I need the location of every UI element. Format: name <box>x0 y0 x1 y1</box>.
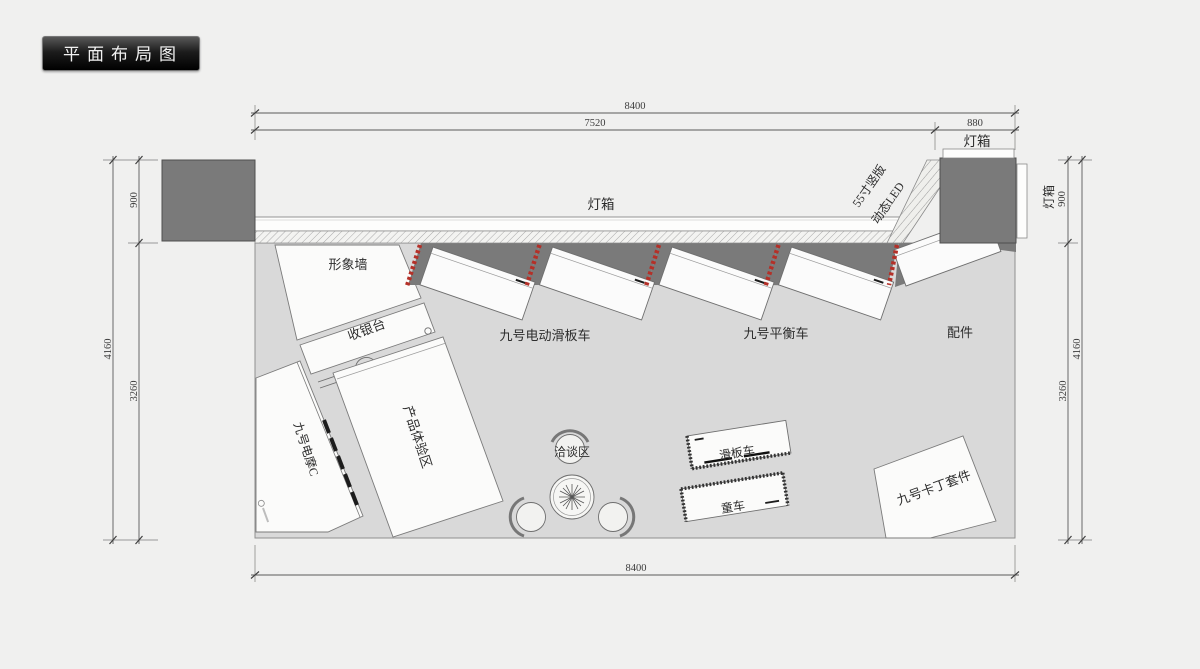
corner-lightbox-label: 灯箱 <box>964 134 991 149</box>
dim-left-total: 4160 <box>103 339 114 360</box>
image-wall-label: 形象墙 <box>328 257 367 272</box>
dim-right-total: 4160 <box>1072 339 1083 360</box>
dim-top-corner: 880 <box>967 118 983 129</box>
corner-lightbox-side <box>1017 164 1027 238</box>
dim-right-upper: 900 <box>1057 191 1068 207</box>
corner-lightbox-top <box>943 149 1014 158</box>
dim-right-lower: 3260 <box>1058 381 1069 402</box>
dim-left-upper: 900 <box>129 192 140 208</box>
chair <box>599 503 628 532</box>
wall-block-left <box>162 160 255 241</box>
accessories-label: 配件 <box>947 325 973 340</box>
negotiation-label: 洽谈区 <box>554 445 590 459</box>
dim-bottom-total: 8400 <box>626 563 647 574</box>
wall-hatched-strip <box>255 231 900 243</box>
escooter-label: 九号电动滑板车 <box>499 328 590 343</box>
floor-plan-page: 平面布局图 <box>0 0 1200 669</box>
lightbox-strip <box>255 217 900 231</box>
balance-car-label: 九号平衡车 <box>743 326 808 341</box>
dim-top-main: 7520 <box>585 118 606 129</box>
lightbox-label: 灯箱 <box>588 197 615 212</box>
chair <box>517 503 546 532</box>
right-lightbox-label: 灯箱 <box>1041 185 1056 209</box>
dim-top-total: 8400 <box>625 101 646 112</box>
floor-plan-drawing: 形象墙 收银台 产品体验区 九号电摩C 洽谈区 九号卡丁套件 九号电动滑板车 九… <box>0 0 1200 669</box>
dim-left-lower: 3260 <box>129 381 140 402</box>
wall-block-right <box>940 158 1016 243</box>
